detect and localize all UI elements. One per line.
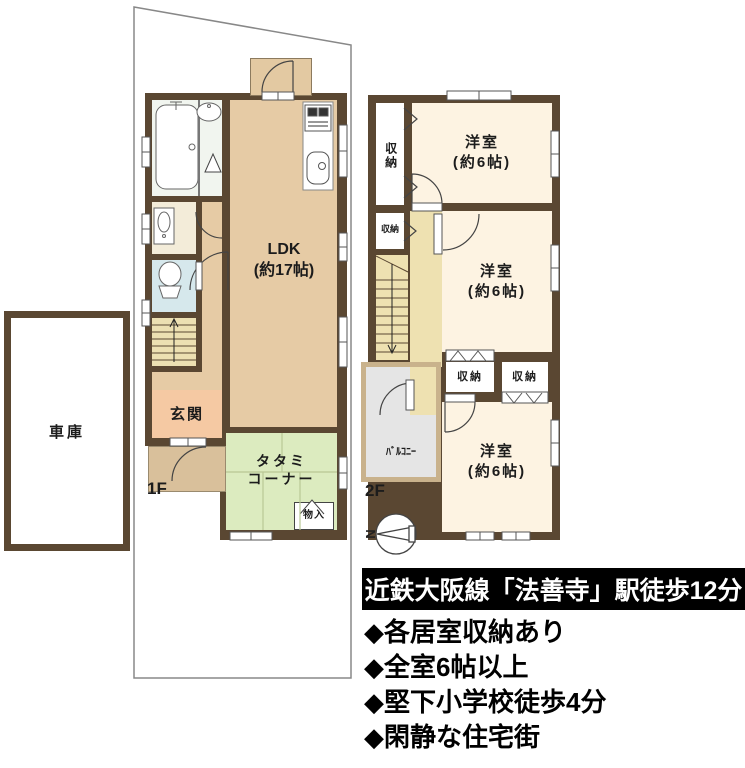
closet2-label: 収納 xyxy=(376,224,404,236)
balcony-label: ﾊﾞﾙｺﾆｰ xyxy=(368,446,434,459)
toilet-room xyxy=(152,260,196,312)
feature-item-2: ◆全室6帖以上 xyxy=(364,652,528,682)
hall-2f-notch xyxy=(410,367,436,415)
hall-2f xyxy=(410,211,442,367)
tatami-corner-label: タタミ コーナー xyxy=(228,452,335,488)
monoire-label: 物入 xyxy=(294,509,334,522)
floor1-label: 1F xyxy=(147,478,187,500)
washroom xyxy=(152,202,196,254)
garage-label: 車庫 xyxy=(49,421,85,442)
bedroom3-label: 洋室 (約6帖) xyxy=(445,442,549,481)
stairs-1f xyxy=(152,318,196,366)
bedroom2-label: 洋室 (約6帖) xyxy=(445,262,549,301)
bedroom1-label: 洋室 (約6帖) xyxy=(430,133,534,172)
floorplan-flyer: 車庫 xyxy=(0,0,745,768)
ldk-label: LDK (約17帖) xyxy=(232,240,336,282)
hall-1f xyxy=(202,202,222,390)
closet1-label: 収納 xyxy=(382,128,398,184)
genkan-label: 玄関 xyxy=(152,405,222,425)
feature-item-3: ◆堅下小学校徒歩4分 xyxy=(364,687,606,717)
stairs-2f xyxy=(376,255,408,360)
bathroom xyxy=(152,100,222,196)
entrance-porch-top xyxy=(250,58,312,96)
garage-room: 車庫 xyxy=(4,311,130,551)
closet4-label: 収納 xyxy=(502,370,548,384)
feature-item-4: ◆閑静な住宅街 xyxy=(364,722,540,752)
closet3-label: 収納 xyxy=(446,370,494,384)
floor2-label: 2F xyxy=(365,480,405,502)
feature-item-1: ◆各居室収納あり xyxy=(364,617,566,647)
station-banner: 近鉄大阪線「法善寺」駅徒歩12分 xyxy=(362,568,745,610)
hall-1f-lower xyxy=(152,372,222,390)
